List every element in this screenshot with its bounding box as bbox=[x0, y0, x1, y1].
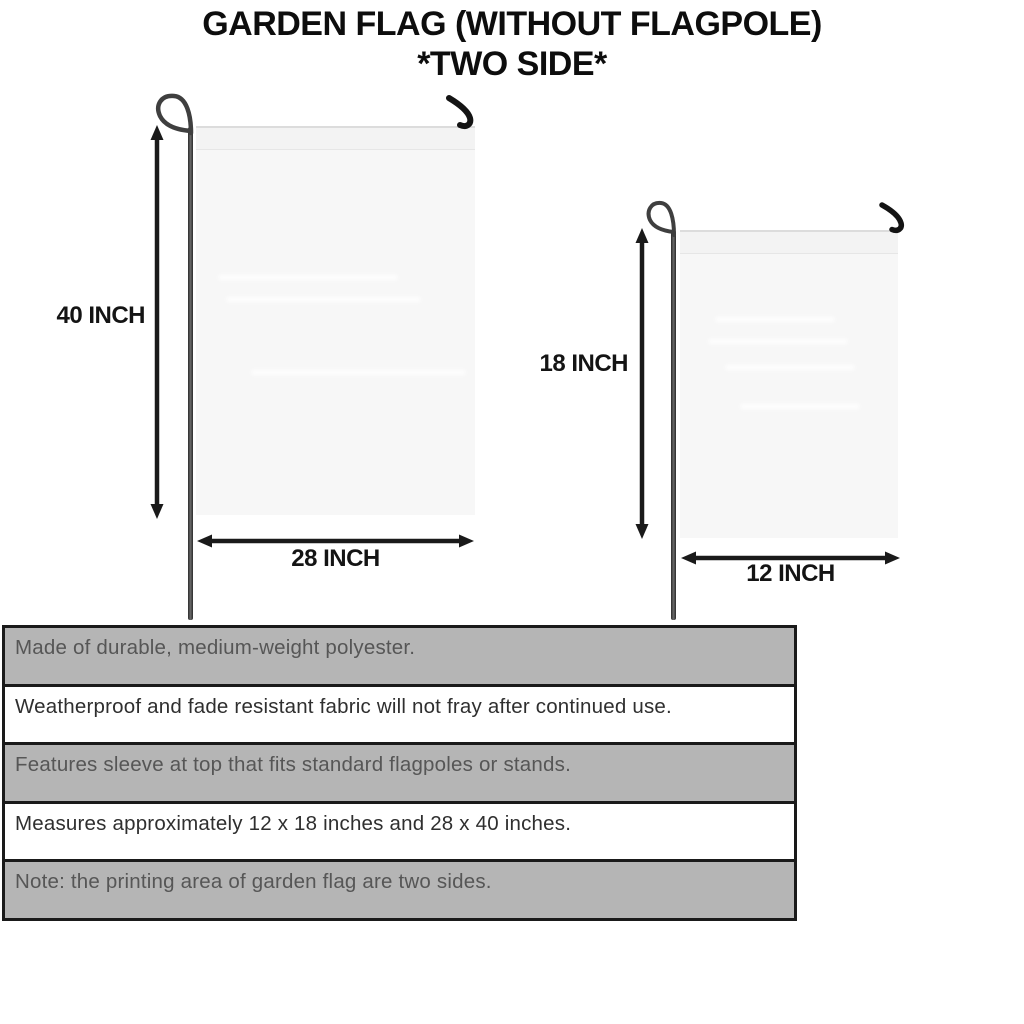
large-flag-hook-icon bbox=[444, 94, 484, 134]
feature-text: Weatherproof and fade resistant fabric w… bbox=[15, 695, 672, 718]
large-height-arrow bbox=[147, 125, 167, 519]
garden-flag-infographic: GARDEN FLAG (WITHOUT FLAGPOLE) *TWO SIDE… bbox=[0, 0, 1024, 1024]
small-height-label: 18 INCH bbox=[508, 350, 628, 378]
flag-crease bbox=[740, 404, 860, 409]
large-width-label: 28 INCH bbox=[197, 545, 474, 573]
page-subtitle: *TWO SIDE* bbox=[0, 45, 1024, 84]
flag-crease bbox=[715, 317, 835, 322]
large-height-label: 40 INCH bbox=[25, 302, 145, 330]
feature-text: Note: the printing area of garden flag a… bbox=[15, 870, 492, 893]
large-flag-sleeve bbox=[196, 128, 475, 150]
flag-crease bbox=[725, 365, 855, 370]
small-flag bbox=[680, 230, 898, 538]
feature-row: Note: the printing area of garden flag a… bbox=[5, 862, 794, 918]
feature-text: Made of durable, medium-weight polyester… bbox=[15, 636, 415, 659]
features-table: Made of durable, medium-weight polyester… bbox=[2, 625, 797, 921]
small-flag-sleeve bbox=[680, 232, 898, 254]
feature-text: Measures approximately 12 x 18 inches an… bbox=[15, 812, 571, 835]
flag-crease bbox=[218, 275, 398, 280]
feature-row: Weatherproof and fade resistant fabric w… bbox=[5, 687, 794, 746]
small-flag-hook-icon bbox=[878, 202, 914, 238]
feature-row: Features sleeve at top that fits standar… bbox=[5, 745, 794, 804]
small-flag-pole bbox=[671, 231, 676, 620]
large-flag bbox=[196, 126, 475, 515]
feature-row: Made of durable, medium-weight polyester… bbox=[5, 628, 794, 687]
flag-crease bbox=[226, 297, 421, 302]
small-height-arrow bbox=[632, 228, 652, 539]
flag-crease bbox=[708, 339, 848, 344]
feature-row: Measures approximately 12 x 18 inches an… bbox=[5, 804, 794, 863]
large-flag-pole bbox=[188, 127, 193, 620]
page-title: GARDEN FLAG (WITHOUT FLAGPOLE) bbox=[0, 5, 1024, 44]
flag-crease bbox=[251, 370, 466, 375]
feature-text: Features sleeve at top that fits standar… bbox=[15, 753, 571, 776]
small-width-label: 12 INCH bbox=[681, 560, 900, 588]
